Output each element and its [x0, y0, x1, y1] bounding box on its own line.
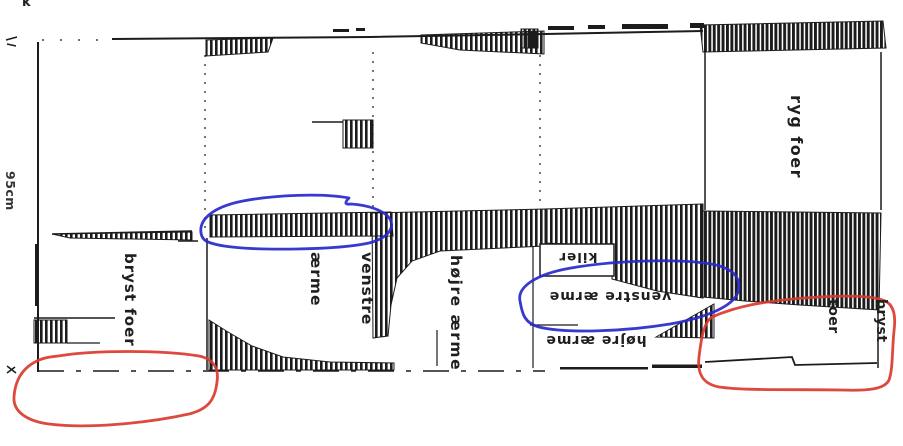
label-bryst-toer: bryst toer — [793, 299, 903, 343]
top-dimension-label: 250 cm — [420, 0, 492, 7]
hatch-wedge-bottom-left — [209, 320, 394, 370]
hatch-small-rect — [343, 120, 373, 148]
marker-drawing — [0, 0, 903, 446]
label-bryst-foer-left: bryst foer — [121, 253, 139, 347]
label-venstre-aerme-line1: venstre — [358, 252, 375, 325]
label-hoejre-aerme-flipped: højre ærme — [534, 332, 658, 348]
hatch-strip-venstre-top — [210, 212, 393, 237]
label-venstre-aerme: venstre ærme — [273, 252, 409, 325]
bryst-toer-bottom-edge — [705, 357, 877, 365]
label-kiler-flipped: kiler — [549, 249, 607, 265]
left-border-thick — [35, 244, 39, 306]
pattern-marker-scan: 250 cm k 95cm bryst foer venstre ærme hø… — [0, 0, 903, 446]
label-venstre-aerme-flipped: venstre ærme — [541, 288, 679, 304]
left-dimension-label: 95cm — [3, 171, 18, 211]
scan-mark-k: k — [22, 0, 31, 10]
bottom-border-thick — [560, 365, 702, 370]
top-border-dashes — [333, 23, 704, 32]
hatch-corner-block — [521, 29, 538, 48]
label-bryst-toer-line1: bryst — [873, 299, 889, 343]
hatch-strip-top-left — [206, 38, 273, 56]
red-annotation-loop-left — [14, 352, 217, 426]
label-bryst-toer-line2: toer — [825, 299, 841, 343]
label-hoejre-aerme: højre ærme — [447, 255, 465, 371]
top-border-line — [112, 31, 703, 39]
label-ryg-foer: ryg foer — [787, 95, 806, 179]
hatch-band-top-right — [700, 21, 886, 52]
label-venstre-aerme-line2: ærme — [307, 252, 324, 325]
